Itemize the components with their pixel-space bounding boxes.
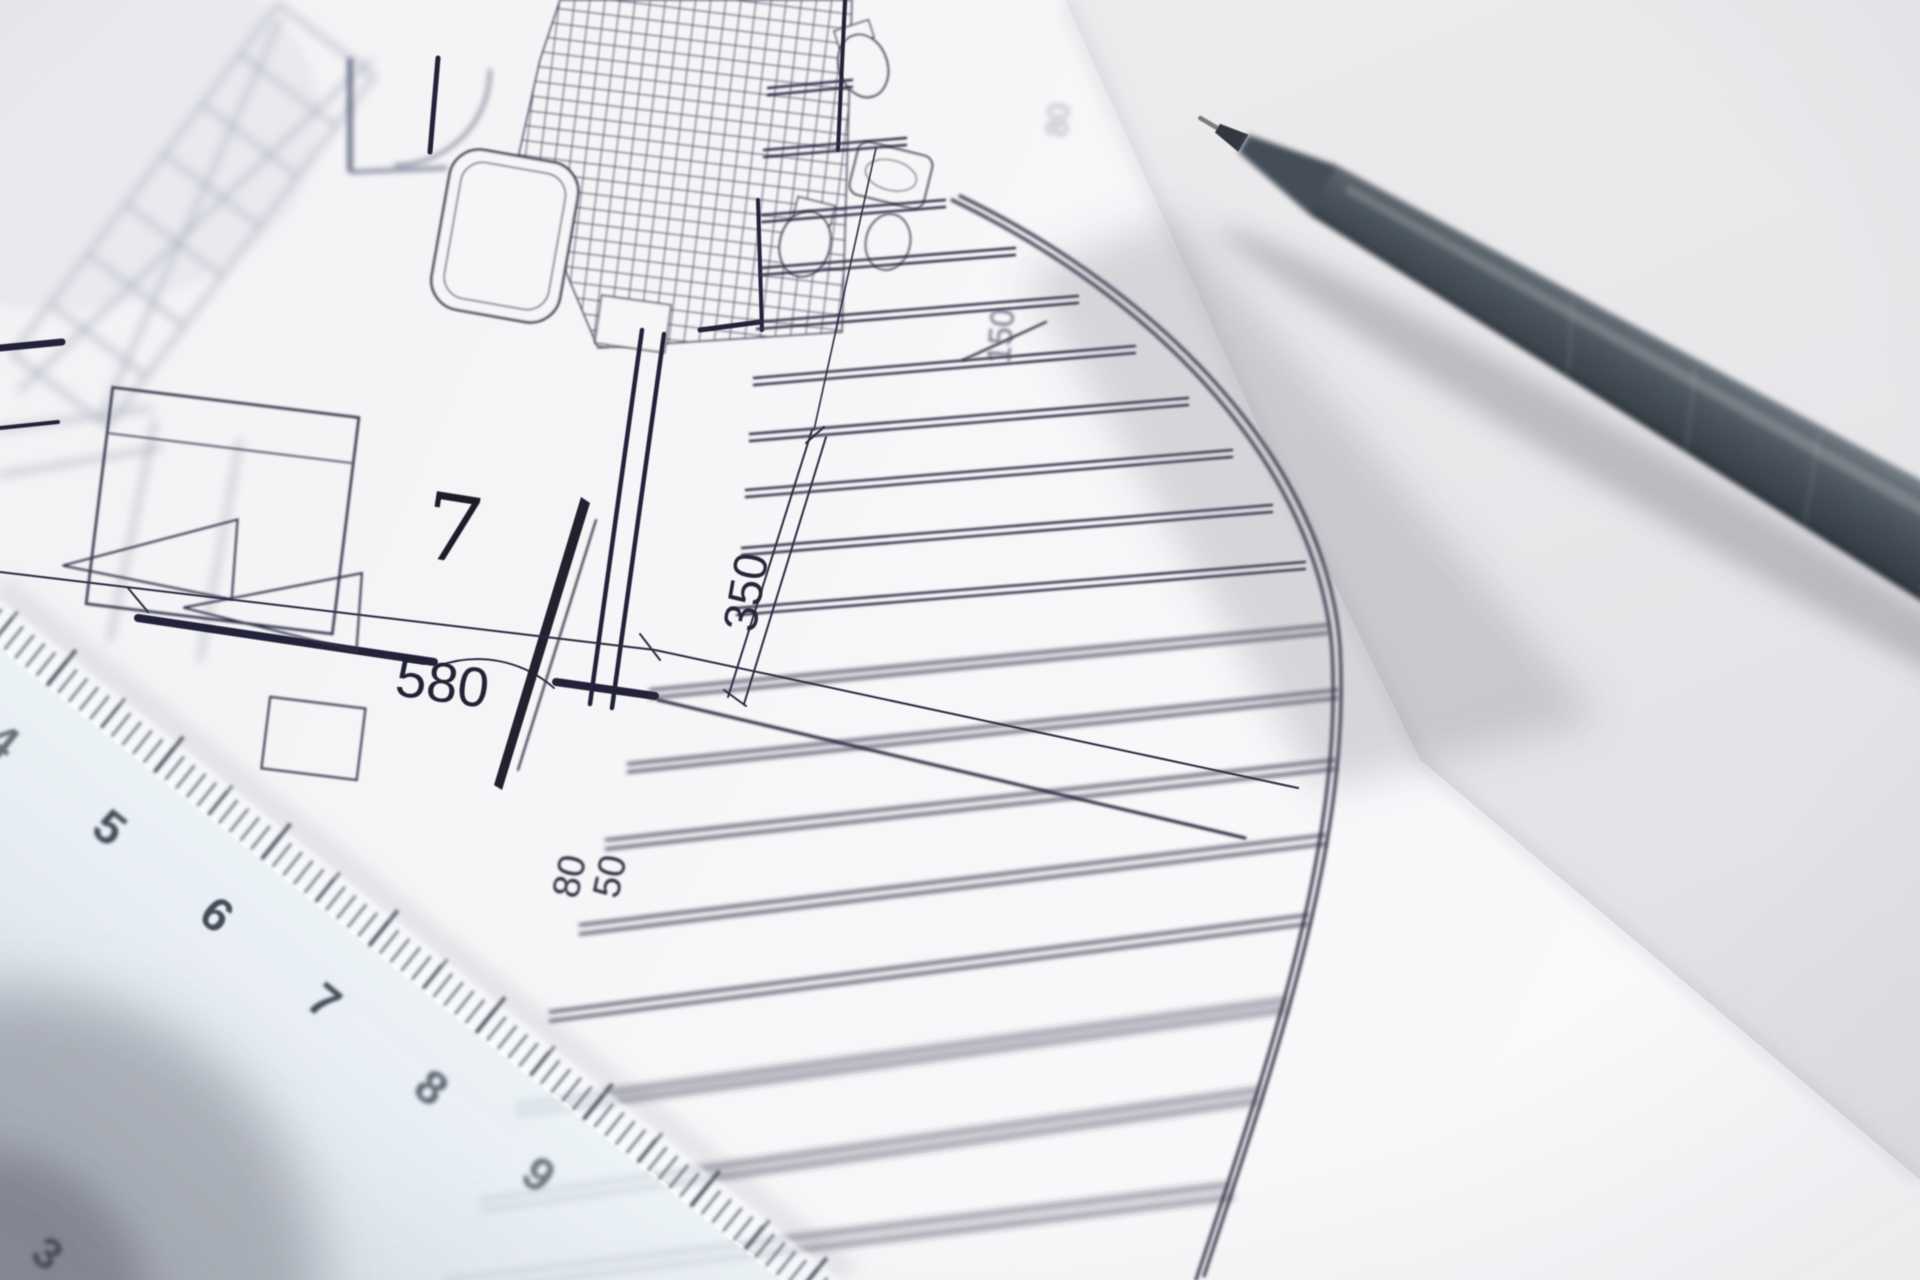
blueprint-scene: 7 580 350 80 50 150 80 4 5 6 7 8 9 (0, 0, 1920, 1280)
photo-architectural-blueprint: 7 580 350 80 50 150 80 4 5 6 7 8 9 (0, 0, 1920, 1280)
vignette (0, 0, 1920, 1280)
